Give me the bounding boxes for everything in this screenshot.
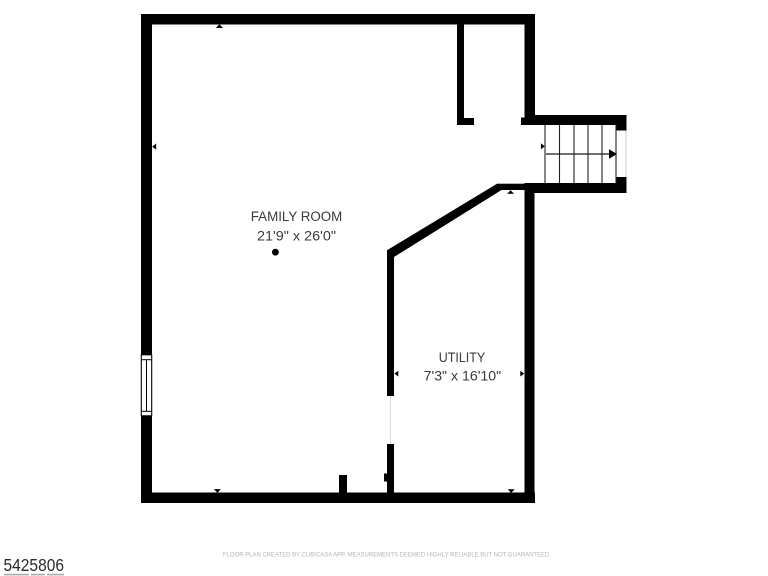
svg-text:5425806: 5425806 [4,555,65,575]
svg-text:7'3" x 16'10": 7'3" x 16'10" [424,369,502,385]
svg-text:FLOOR PLAN CREATED BY CUBICASA: FLOOR PLAN CREATED BY CUBICASA APP. MEAS… [223,553,551,559]
svg-text:UTILITY: UTILITY [439,350,486,366]
svg-text:FAMILY ROOM: FAMILY ROOM [251,209,343,225]
svg-text:21'9" x 26'0": 21'9" x 26'0" [257,228,336,244]
